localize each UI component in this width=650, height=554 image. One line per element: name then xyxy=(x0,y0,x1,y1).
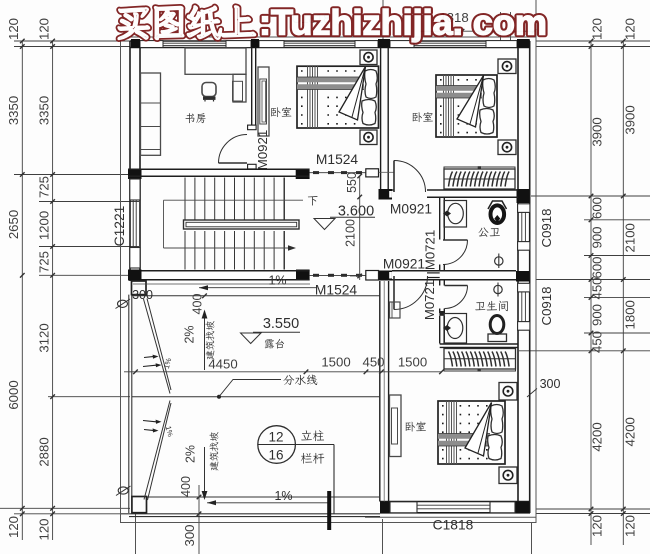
svg-text:2100: 2100 xyxy=(622,223,637,252)
svg-text:M1524: M1524 xyxy=(316,152,359,167)
svg-text:2880: 2880 xyxy=(36,437,51,466)
svg-text:725: 725 xyxy=(36,176,51,198)
svg-text:2100: 2100 xyxy=(343,219,357,247)
svg-text:4200: 4200 xyxy=(589,422,604,451)
svg-text:120: 120 xyxy=(6,18,21,40)
svg-text:M1524: M1524 xyxy=(315,283,358,298)
svg-text:120: 120 xyxy=(36,18,51,40)
svg-text:1500: 1500 xyxy=(321,355,350,370)
svg-text:C0918: C0918 xyxy=(539,209,554,248)
svg-text:725: 725 xyxy=(36,251,51,273)
svg-text:120: 120 xyxy=(622,515,637,537)
svg-text:450: 450 xyxy=(589,277,604,299)
svg-text:600: 600 xyxy=(589,197,604,219)
svg-text:900: 900 xyxy=(589,304,604,326)
svg-text:120: 120 xyxy=(6,516,21,538)
svg-text::Tuzhizhijia. com: :Tuzhizhijia. com xyxy=(259,4,547,43)
svg-text:16: 16 xyxy=(268,448,283,463)
svg-text:2650: 2650 xyxy=(6,210,21,239)
svg-text:M0921: M0921 xyxy=(390,202,432,217)
svg-text:450: 450 xyxy=(362,355,384,370)
svg-text:120: 120 xyxy=(589,18,604,40)
svg-text:1200: 1200 xyxy=(36,211,51,240)
svg-text:300: 300 xyxy=(182,524,197,546)
svg-text:300: 300 xyxy=(540,377,561,391)
svg-text:3900: 3900 xyxy=(622,105,637,134)
svg-text:450: 450 xyxy=(589,331,604,353)
svg-text:900: 900 xyxy=(589,226,604,248)
svg-text:M0921: M0921 xyxy=(255,130,270,170)
svg-text:550: 550 xyxy=(345,172,359,193)
svg-text:C1818: C1818 xyxy=(433,518,474,533)
svg-text:2%: 2% xyxy=(183,445,197,463)
svg-text:120: 120 xyxy=(36,518,51,540)
svg-text:1500: 1500 xyxy=(398,355,427,370)
svg-text:3350: 3350 xyxy=(36,96,51,125)
svg-text:12: 12 xyxy=(268,430,283,445)
svg-text:3.550: 3.550 xyxy=(263,316,299,332)
svg-text:4450: 4450 xyxy=(208,357,237,372)
svg-text:3350: 3350 xyxy=(6,96,21,125)
svg-text:C1221: C1221 xyxy=(112,206,127,247)
svg-text:3900: 3900 xyxy=(589,117,604,146)
svg-text:3120: 3120 xyxy=(36,323,51,352)
svg-text:C0918: C0918 xyxy=(539,287,554,326)
svg-text:600: 600 xyxy=(589,256,604,278)
svg-text:6000: 6000 xyxy=(6,380,21,409)
svg-text:1%: 1% xyxy=(268,274,286,288)
svg-text:400: 400 xyxy=(179,476,193,497)
svg-text:400: 400 xyxy=(191,294,205,315)
svg-text:2%: 2% xyxy=(182,325,196,343)
svg-text:M0721: M0721 xyxy=(422,280,437,320)
svg-text:M0921: M0921 xyxy=(383,257,425,272)
svg-text:300: 300 xyxy=(132,288,153,302)
svg-text:1800: 1800 xyxy=(622,300,637,329)
svg-text:120: 120 xyxy=(622,18,637,40)
svg-text:120: 120 xyxy=(589,515,604,537)
svg-text:1%: 1% xyxy=(274,489,292,503)
svg-text:4200: 4200 xyxy=(622,417,637,446)
